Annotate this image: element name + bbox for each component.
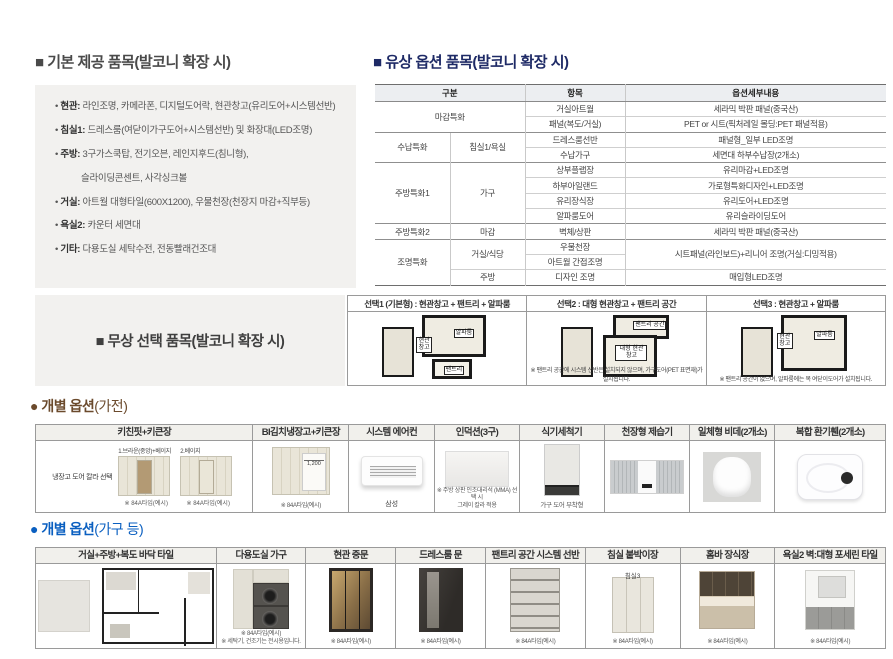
fan-body xyxy=(775,441,885,512)
free-selection-box: ■ 무상 선택 품목(발코니 확장 시) xyxy=(35,295,345,386)
column-header: 인덕션(3구) xyxy=(435,425,519,441)
dishwasher-vent xyxy=(545,485,579,495)
basic-item-bath2: 욕실2: 카운터 세면대 xyxy=(55,220,346,231)
beige-door xyxy=(199,460,214,494)
basic-item-etc: 기타: 다용도실 세탁수전, 전동빨래건조대 xyxy=(55,244,346,255)
appliance-col-dehumidifier: 천장형 제습기 xyxy=(604,425,690,512)
upper-cabinet xyxy=(253,569,289,583)
bathroom-wall xyxy=(806,571,854,607)
furniture-col-floor-tile: 거실+주방+복도 바닥 타일 xyxy=(36,548,216,648)
paid-options-table: 구분 항목 옵션세부내용 마감특화 거실아트월세라믹 박판 패널(중국산) 패널… xyxy=(375,84,886,286)
room-label-chip: 알파룸 xyxy=(814,331,835,340)
room-label-chip: 현관창고 xyxy=(777,333,793,349)
basic-item-bedroom1: 침실1: 드레스룸(여닫이가구도어+시스템선반) 및 화장대(LED조명) xyxy=(55,125,346,136)
plan-wall xyxy=(184,598,186,646)
table-row: 수납특화 침실1/욕실 드레스룸선반패널형_일부 LED조명 xyxy=(375,132,886,147)
column-header: 침실 붙박이장 xyxy=(586,548,680,564)
table-row: 주방 디자인 조명 매입형LED조명 xyxy=(375,270,886,285)
options-brochure-page: ■ 기본 제공 품목(발코니 확장 시) 현관: 라인조명, 카메라폰, 디지털… xyxy=(0,0,893,659)
paid-options-title: ■ 유상 옵션 품목(발코니 확장 시) xyxy=(373,51,569,72)
room-label-chip: 팬트리 공간 xyxy=(633,321,666,330)
appliance-col-induction: 인덕션(3구) ※ 주방 상판 인조대리석 (MMA) 선택 시그레이 칼라 적… xyxy=(434,425,519,512)
plan-wall xyxy=(138,570,140,612)
col-header-detail: 옵션세부내용 xyxy=(625,85,886,102)
appliance-col-ventilation-fan: 복합 환기휀(2개소) xyxy=(774,425,885,512)
col-header-item: 항목 xyxy=(525,85,625,102)
toilet-shape xyxy=(713,457,751,497)
kitchenfit-body: 냉장고 도어 칼라 선택 1.브라운(중앙)+베이지 ※ 84A타입(예시) 2… xyxy=(36,441,252,512)
pantry-shelf-body: ※ 84A타입(예시) xyxy=(486,564,585,648)
floor-plan-option1: 알파룸 현관창고 팬트리 xyxy=(378,315,496,379)
room-label-chip: 대형 현관창고 xyxy=(615,345,647,361)
furniture-col-homebar: 홈바 장식장 ※ 84A타입(예시) xyxy=(680,548,775,648)
variant-caption: 1.브라운(중앙)+베이지 xyxy=(118,446,174,455)
appliance-col-dishwasher: 식기세척기 가구 도어 부착형 xyxy=(519,425,604,512)
room-label-chip: 현관창고 xyxy=(416,337,432,353)
dimension-label: 1,200 xyxy=(304,460,324,467)
bathroom-image xyxy=(805,570,855,630)
washer-unit xyxy=(253,606,289,629)
free-option-2-plan-area: 팬트리 공간 대형 현관창고 ※ 팬트리 공간에 시스템 선반은 설치되지 않으… xyxy=(527,312,705,385)
entry-area xyxy=(382,327,414,377)
kimchi-cabinet-image: 1,200 xyxy=(272,447,330,495)
free-option-2: 선택2 : 대형 현관창고 + 팬트리 공간 팬트리 공간 대형 현관창고 ※ … xyxy=(526,296,705,385)
appliance-col-system-ac: 시스템 에어컨 삼성 xyxy=(348,425,434,512)
vent-left xyxy=(611,461,638,493)
basic-item-entrance: 현관: 라인조명, 카메라폰, 디지털도어락, 현관창고(유리도어+시스템선반) xyxy=(55,101,346,112)
variant-note: ※ 84A타입(예시) xyxy=(180,498,236,507)
table-row: 마감특화 거실아트월세라믹 박판 패널(중국산) xyxy=(375,102,886,117)
appliance-options-table: 키친핏+키큰장 냉장고 도어 칼라 선택 1.브라운(중앙)+베이지 ※ 84A… xyxy=(35,424,886,513)
column-header: 시스템 에어컨 xyxy=(349,425,434,441)
furniture-options-title: ● 개별 옵션(가구 등) xyxy=(30,519,143,539)
furniture-col-builtin-closet: 침실 붙박이장 침실3 ※ 84A타입(예시) xyxy=(585,548,680,648)
control-panel xyxy=(638,461,656,493)
note: ※ 84A타입(예시) xyxy=(254,503,347,511)
utility-room-body: ※ 84A타입(예시)※ 세탁기, 건조기는 전시용입니다. xyxy=(217,564,306,648)
column-header: 식기세척기 xyxy=(520,425,604,441)
free-option-1-plan-area: 알파룸 현관창고 팬트리 xyxy=(348,312,526,385)
brand-caption: 삼성 xyxy=(349,499,434,509)
column-header: 키친핏+키큰장 xyxy=(36,425,252,441)
free-option-3-header: 선택3 : 현관창고 + 알파룸 xyxy=(707,296,885,312)
closet-image xyxy=(612,577,654,633)
dehumidifier-image xyxy=(610,460,684,494)
appliance-options-title: ● 개별 옵션(가전) xyxy=(30,396,127,416)
appliance-col-kitchenfit: 키친핏+키큰장 냉장고 도어 칼라 선택 1.브라운(중앙)+베이지 ※ 84A… xyxy=(36,425,252,512)
fridge-door-color-note: 냉장고 도어 칼라 선택 xyxy=(49,472,115,482)
free-option-1: 선택1 (기본형) : 현관창고 + 팬트리 + 알파룸 알파룸 현관창고 팬트… xyxy=(348,296,526,385)
note: ※ 84A타입(예시)※ 세탁기, 건조기는 전시용입니다. xyxy=(218,631,305,646)
display xyxy=(642,484,652,488)
induction-image xyxy=(445,451,509,487)
homebar-cabinet-image xyxy=(699,571,755,629)
basic-item-living: 거실: 아트월 대형타일(600X1200), 우물천장(천장지 마감+직부등) xyxy=(55,197,346,208)
column-header: 복합 환기휀(2개소) xyxy=(775,425,885,441)
free-option-3-plan-area: 현관창고 알파룸 ※ 팬트리 공간이 없으며, 알파룸에는 목 여닫이도어가 설… xyxy=(707,312,885,385)
basic-items-box: 현관: 라인조명, 카메라폰, 디지털도어락, 현관창고(유리도어+시스템선반)… xyxy=(35,85,356,288)
furniture-col-bathroom-tile: 욕실2 벽:대형 포세린 타일 ※ 84A타입(예시) xyxy=(774,548,885,648)
column-header: 홈바 장식장 xyxy=(681,548,775,564)
plan-wall xyxy=(104,612,159,614)
furniture-options-table: 거실+주방+복도 바닥 타일 다용도실 가구 xyxy=(35,547,886,649)
bidet-image xyxy=(703,452,761,502)
note: ※ 84A타입(예시) xyxy=(487,639,584,647)
air-conditioner-image xyxy=(361,456,423,486)
table-row: 조명특화 거실/식당 우물천장 시트패널(라인보드)+리니어 조명(거실:디밍적… xyxy=(375,239,886,254)
free-option-2-note: ※ 팬트리 공간에 시스템 선반은 설치되지 않으며, 가구도어(PET 표면재… xyxy=(528,365,704,383)
kitchenfit-variant-1: 1.브라운(중앙)+베이지 ※ 84A타입(예시) xyxy=(118,446,174,507)
furniture-col-utility-room: 다용도실 가구 ※ 84A타입(예시)※ 세탁기, 건조기는 전시용입니다. xyxy=(216,548,306,648)
kitchenfit-variant-2: 2.베이지 ※ 84A타입(예시) xyxy=(180,446,236,507)
note: ※ 84A타입(예시) xyxy=(682,639,774,647)
column-header: 다용도실 가구 xyxy=(217,548,306,564)
furniture-col-entrance-door: 현관 중문 ※ 84A타입(예시) xyxy=(305,548,395,648)
apartment-floor-plan xyxy=(102,568,214,644)
table-row: 주방특화2 마감 벽체/상판세라믹 박판 패널(중국산) xyxy=(375,224,886,239)
dehumidifier-body xyxy=(605,441,690,512)
niche-space xyxy=(302,453,326,491)
dryer-unit xyxy=(253,583,289,606)
furniture-col-dressroom-door: 드레스룸 문 ※ 84A타입(예시) xyxy=(395,548,485,648)
col-header-category: 구분 xyxy=(375,85,525,102)
room-label-chip: 팬트리 xyxy=(444,366,465,375)
variant-note: ※ 84A타입(예시) xyxy=(118,498,174,507)
cabinet xyxy=(233,569,253,629)
furniture-col-pantry-shelf: 팬트리 공간 시스템 선반 ※ 84A타입(예시) xyxy=(485,548,585,648)
free-option-3: 선택3 : 현관창고 + 알파룸 현관창고 알파룸 ※ 팬트리 공간이 없으며,… xyxy=(706,296,885,385)
vent-right xyxy=(656,461,683,493)
glass-door-image xyxy=(329,568,373,632)
free-option-2-header: 선택2 : 대형 현관창고 + 팬트리 공간 xyxy=(527,296,705,312)
free-selection-options: 선택1 (기본형) : 현관창고 + 팬트리 + 알파룸 알파룸 현관창고 팬트… xyxy=(347,295,886,386)
entry-area xyxy=(741,327,773,377)
dishwasher-image xyxy=(544,444,580,496)
caption: 가구 도어 부착형 xyxy=(521,502,603,510)
table-row: 주방특화1 가구 상부플랩장유리마감+LED조명 xyxy=(375,163,886,178)
tile-swatch xyxy=(38,580,90,632)
variant-caption: 2.베이지 xyxy=(180,446,236,455)
room-caption: 침실3 xyxy=(586,570,680,580)
column-header: 팬트리 공간 시스템 선반 xyxy=(486,548,585,564)
column-header: 거실+주방+복도 바닥 타일 xyxy=(36,548,216,564)
basic-item-kitchen-cont: 슬라이딩콘센트, 사각싱크볼 xyxy=(55,173,346,184)
brown-door xyxy=(137,460,152,494)
floor-tile-body xyxy=(36,564,216,648)
column-header: 천장형 제습기 xyxy=(605,425,690,441)
pantry-shelves-image xyxy=(510,568,560,632)
kimchi-fridge-body: 1,200 ※ 84A타입(예시) xyxy=(253,441,348,512)
fan-knob xyxy=(841,472,853,484)
bathroom-floor xyxy=(806,607,854,629)
column-header: 일체형 비데(2개소) xyxy=(690,425,774,441)
basic-items-title: ■ 기본 제공 품목(발코니 확장 시) xyxy=(35,51,231,72)
fan-image xyxy=(797,454,863,500)
cabinet-image xyxy=(180,456,232,496)
column-header: 현관 중문 xyxy=(306,548,395,564)
column-header: 드레스룸 문 xyxy=(396,548,485,564)
basic-item-kitchen: 주방: 3구가스쿡탑, 전기오븐, 레인지후드(침니형), xyxy=(55,149,346,160)
induction-body: ※ 주방 상판 인조대리석 (MMA) 선택 시그레이 칼라 적용 xyxy=(435,441,519,512)
note: ※ 84A타입(예시) xyxy=(587,639,679,647)
ac-vent xyxy=(370,466,416,478)
homebar-body: ※ 84A타입(예시) xyxy=(681,564,775,648)
note: ※ 84A타입(예시) xyxy=(397,639,484,647)
dressroom-door-body: ※ 84A타입(예시) xyxy=(396,564,485,648)
dressroom-door-image xyxy=(419,568,463,632)
note: ※ 84A타입(예시) xyxy=(307,639,394,647)
glass-cabinet xyxy=(700,572,754,596)
drawers xyxy=(700,606,754,628)
room-label-chip: 알파룸 xyxy=(454,329,475,338)
appliance-col-kimchi-fridge: BI김치냉장고+키큰장 1,200 ※ 84A타입(예시) xyxy=(252,425,348,512)
bidet-body xyxy=(690,441,774,512)
floor-plan-option3: 현관창고 알파룸 xyxy=(737,315,855,379)
note: ※ 주방 상판 인조대리석 (MMA) 선택 시그레이 칼라 적용 xyxy=(436,488,518,511)
note: ※ 84A타입(예시) xyxy=(776,639,884,647)
plan-room xyxy=(110,624,130,638)
column-header: 욕실2 벽:대형 포세린 타일 xyxy=(775,548,885,564)
system-ac-body: 삼성 xyxy=(349,441,434,512)
plan-room xyxy=(106,572,136,590)
dishwasher-body: 가구 도어 부착형 xyxy=(520,441,604,512)
column-header: BI김치냉장고+키큰장 xyxy=(253,425,348,441)
free-option-3-note: ※ 팬트리 공간이 없으며, 알파룸에는 목 여닫이도어가 설치됩니다. xyxy=(708,374,884,383)
builtin-closet-body: 침실3 ※ 84A타입(예시) xyxy=(586,564,680,648)
bathroom-tile-body: ※ 84A타입(예시) xyxy=(775,564,885,648)
plan-room xyxy=(188,572,210,594)
counter xyxy=(700,596,754,606)
free-option-1-header: 선택1 (기본형) : 현관창고 + 팬트리 + 알파룸 xyxy=(348,296,526,312)
free-selection-title: ■ 무상 선택 품목(발코니 확장 시) xyxy=(96,330,285,351)
appliance-col-bidet: 일체형 비데(2개소) xyxy=(689,425,774,512)
entrance-door-body: ※ 84A타입(예시) xyxy=(306,564,395,648)
washer-dryer-image xyxy=(233,569,289,629)
paid-header-row: 구분 항목 옵션세부내용 xyxy=(375,85,886,102)
cabinet-image xyxy=(118,456,170,496)
washer-stack xyxy=(253,569,289,629)
